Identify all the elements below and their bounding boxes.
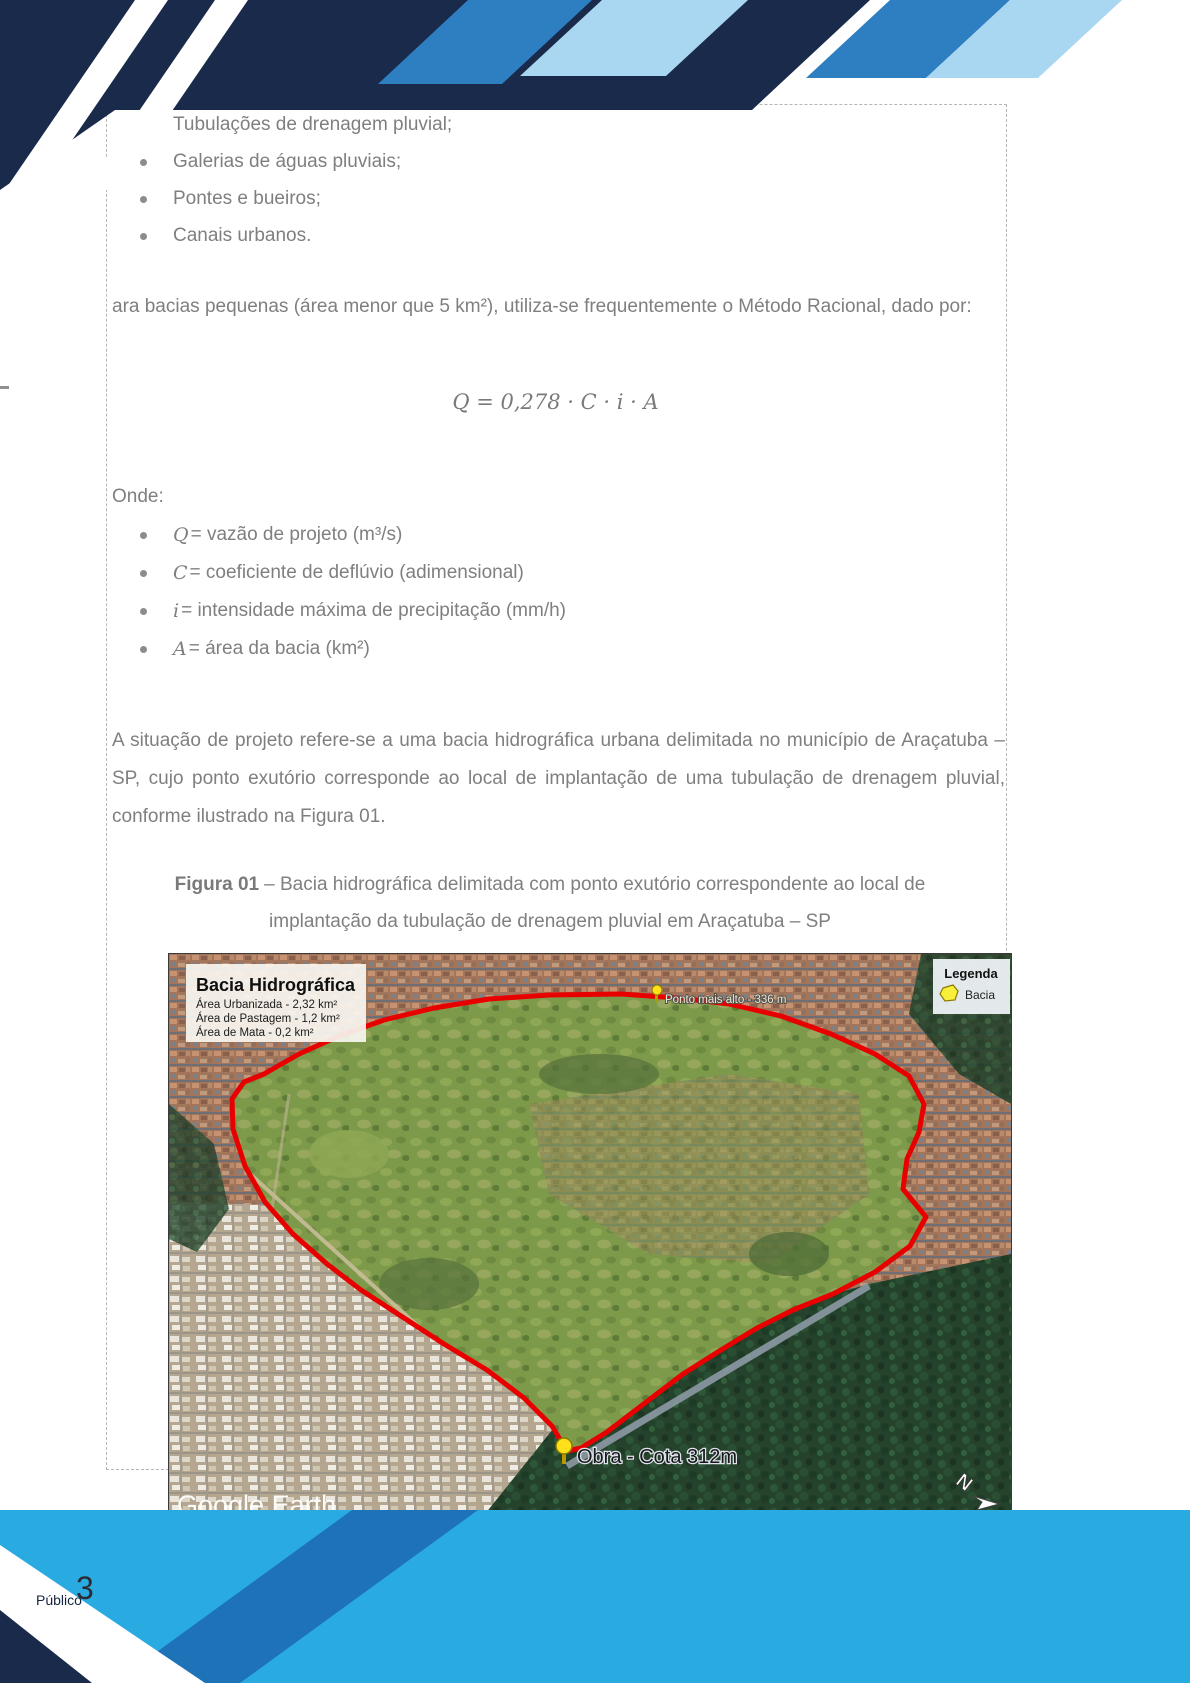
legend-item-label: Bacia (965, 988, 995, 1002)
footer-decoration (0, 1508, 1190, 1683)
definition-item: C= coeficiente de deflúvio (adimensional… (140, 562, 566, 584)
satellite-map-image: Ponto mais alto - 336 m Obra - Cota 312m… (169, 954, 1011, 1534)
page-number: 3 (76, 1570, 94, 1607)
info-area-mata: Área de Mata - 0,2 km² (196, 1026, 314, 1039)
bullet-icon (140, 646, 147, 653)
definition-item: A= área da bacia (km²) (140, 638, 566, 660)
high-point-label: Ponto mais alto - 336 m (665, 994, 786, 1006)
info-box-title: Bacia Hidrográfica (196, 975, 356, 995)
work-site-label: Obra - Cota 312m (577, 1446, 737, 1468)
bullet-icon (140, 532, 147, 539)
legend-title: Legenda (944, 966, 998, 981)
map-legend: Legenda Bacia (933, 959, 1010, 1014)
variable-desc: = área da bacia (km²) (189, 638, 370, 660)
variable-symbol: Q (173, 524, 189, 546)
variable-desc: = coeficiente de deflúvio (adimensional) (190, 562, 524, 584)
info-area-pastagem: Área de Pastagem - 1,2 km² (196, 1012, 340, 1025)
bullet-icon (140, 608, 147, 615)
margin-tick (0, 386, 9, 389)
list-item: Canais urbanos. (140, 225, 452, 247)
paragraph-project-situation: A situação de projeto refere-se a uma ba… (112, 722, 1005, 836)
document-page: Público 3 Tubulações de drenagem pluvial… (0, 0, 1190, 1683)
bullet-icon (140, 570, 147, 577)
figure-caption-text: – Bacia hidrográfica delimitada com pont… (264, 874, 925, 932)
definition-item: Q= vazão de projeto (m³/s) (140, 524, 566, 546)
variable-symbol: C (173, 562, 188, 584)
variable-desc: = intensidade máxima de precipitação (mm… (181, 600, 566, 622)
bullet-icon (140, 233, 147, 240)
variable-definitions-list: Q= vazão de projeto (m³/s) C= coeficient… (140, 524, 566, 660)
figure-01-satellite-map: Ponto mais alto - 336 m Obra - Cota 312m… (168, 953, 1012, 1535)
header-decoration (0, 0, 1190, 200)
definition-item: i= intensidade máxima de precipitação (m… (140, 600, 566, 622)
variable-symbol: i (173, 600, 179, 622)
rational-method-formula: Q = 0,278 · C · i · A (106, 390, 1005, 414)
list-item-text: Canais urbanos. (173, 225, 311, 247)
figure-caption-label: Figura 01 (175, 874, 259, 895)
figure-caption: Figura 01– Bacia hidrográfica delimitada… (150, 866, 950, 940)
paragraph-rational-method: ara bacias pequenas (área menor que 5 km… (112, 288, 1005, 326)
variable-symbol: A (173, 638, 187, 660)
basin-info-box: Bacia Hidrográfica Área Urbanizada - 2,3… (186, 964, 366, 1042)
info-area-urbanizada: Área Urbanizada - 2,32 km² (196, 998, 337, 1011)
onde-label: Onde: (112, 486, 164, 508)
variable-desc: = vazão de projeto (m³/s) (191, 524, 403, 546)
